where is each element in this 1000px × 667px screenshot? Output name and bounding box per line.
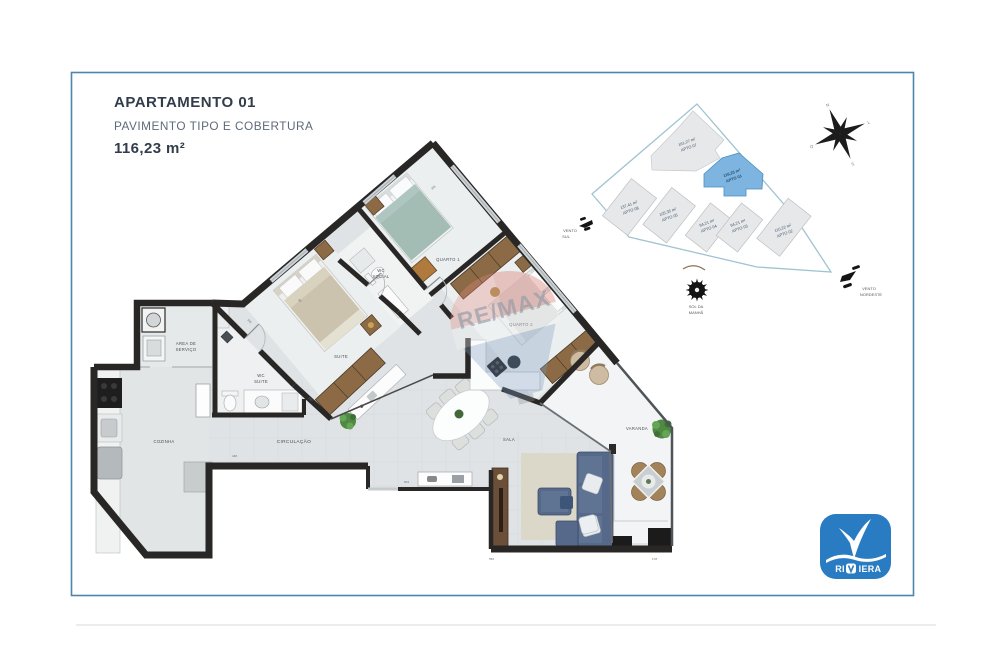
svg-text:VENTO: VENTO [862, 286, 876, 291]
svg-text:CIRCULAÇÃO: CIRCULAÇÃO [277, 438, 311, 445]
svg-text:AREA DE: AREA DE [176, 341, 196, 346]
svg-text:SERVIÇO: SERVIÇO [176, 347, 197, 352]
svg-text:116,23 m²: 116,23 m² [114, 140, 185, 157]
svg-text:VARANDA: VARANDA [626, 426, 648, 431]
svg-text:556: 556 [489, 557, 494, 561]
svg-text:APARTAMENTO 01: APARTAMENTO 01 [114, 94, 256, 111]
svg-text:IERA: IERA [859, 564, 882, 574]
svg-text:SUL: SUL [562, 234, 571, 239]
svg-text:178: 178 [652, 557, 657, 561]
svg-text:RI: RI [835, 564, 845, 574]
svg-text:SALA: SALA [503, 437, 515, 442]
svg-text:SUITE: SUITE [254, 379, 268, 384]
svg-text:PAVIMENTO TIPO E COBERTURA: PAVIMENTO TIPO E COBERTURA [114, 119, 313, 133]
svg-text:VENTO: VENTO [563, 228, 577, 233]
svg-text:SOL DA: SOL DA [689, 304, 704, 309]
svg-text:SUITE: SUITE [334, 354, 348, 359]
svg-text:NORDESTE: NORDESTE [860, 292, 883, 297]
svg-text:COZINHA: COZINHA [154, 439, 175, 444]
svg-text:WC: WC [257, 373, 265, 378]
svg-text:SOCIAL: SOCIAL [372, 274, 390, 279]
svg-text:WC: WC [377, 268, 385, 273]
svg-text:503: 503 [404, 480, 409, 484]
svg-text:448: 448 [232, 454, 237, 458]
svg-text:MANHÃ: MANHÃ [689, 310, 704, 315]
svg-text:QUARTO 1: QUARTO 1 [436, 257, 460, 262]
